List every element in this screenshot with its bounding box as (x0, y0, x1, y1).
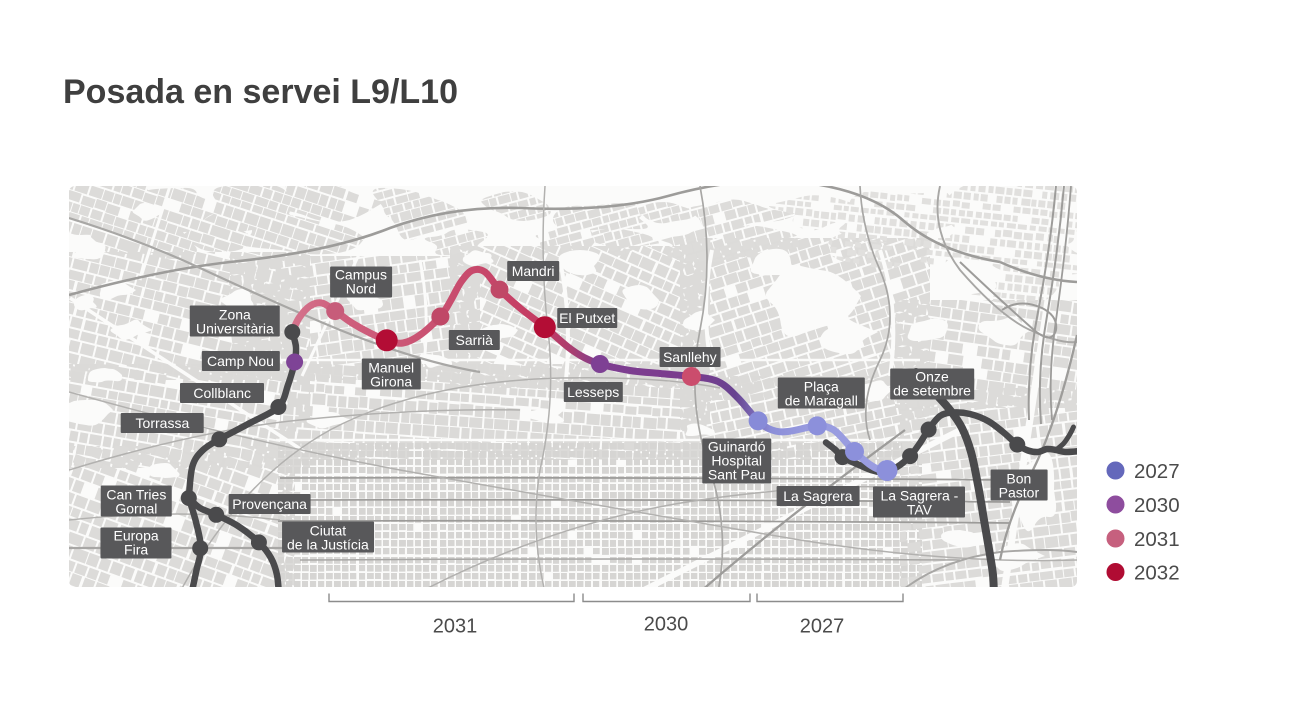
svg-text:2031: 2031 (1134, 528, 1180, 551)
svg-text:2030: 2030 (1134, 494, 1180, 517)
svg-text:2032: 2032 (1134, 561, 1180, 584)
svg-text:2027: 2027 (1134, 460, 1180, 483)
